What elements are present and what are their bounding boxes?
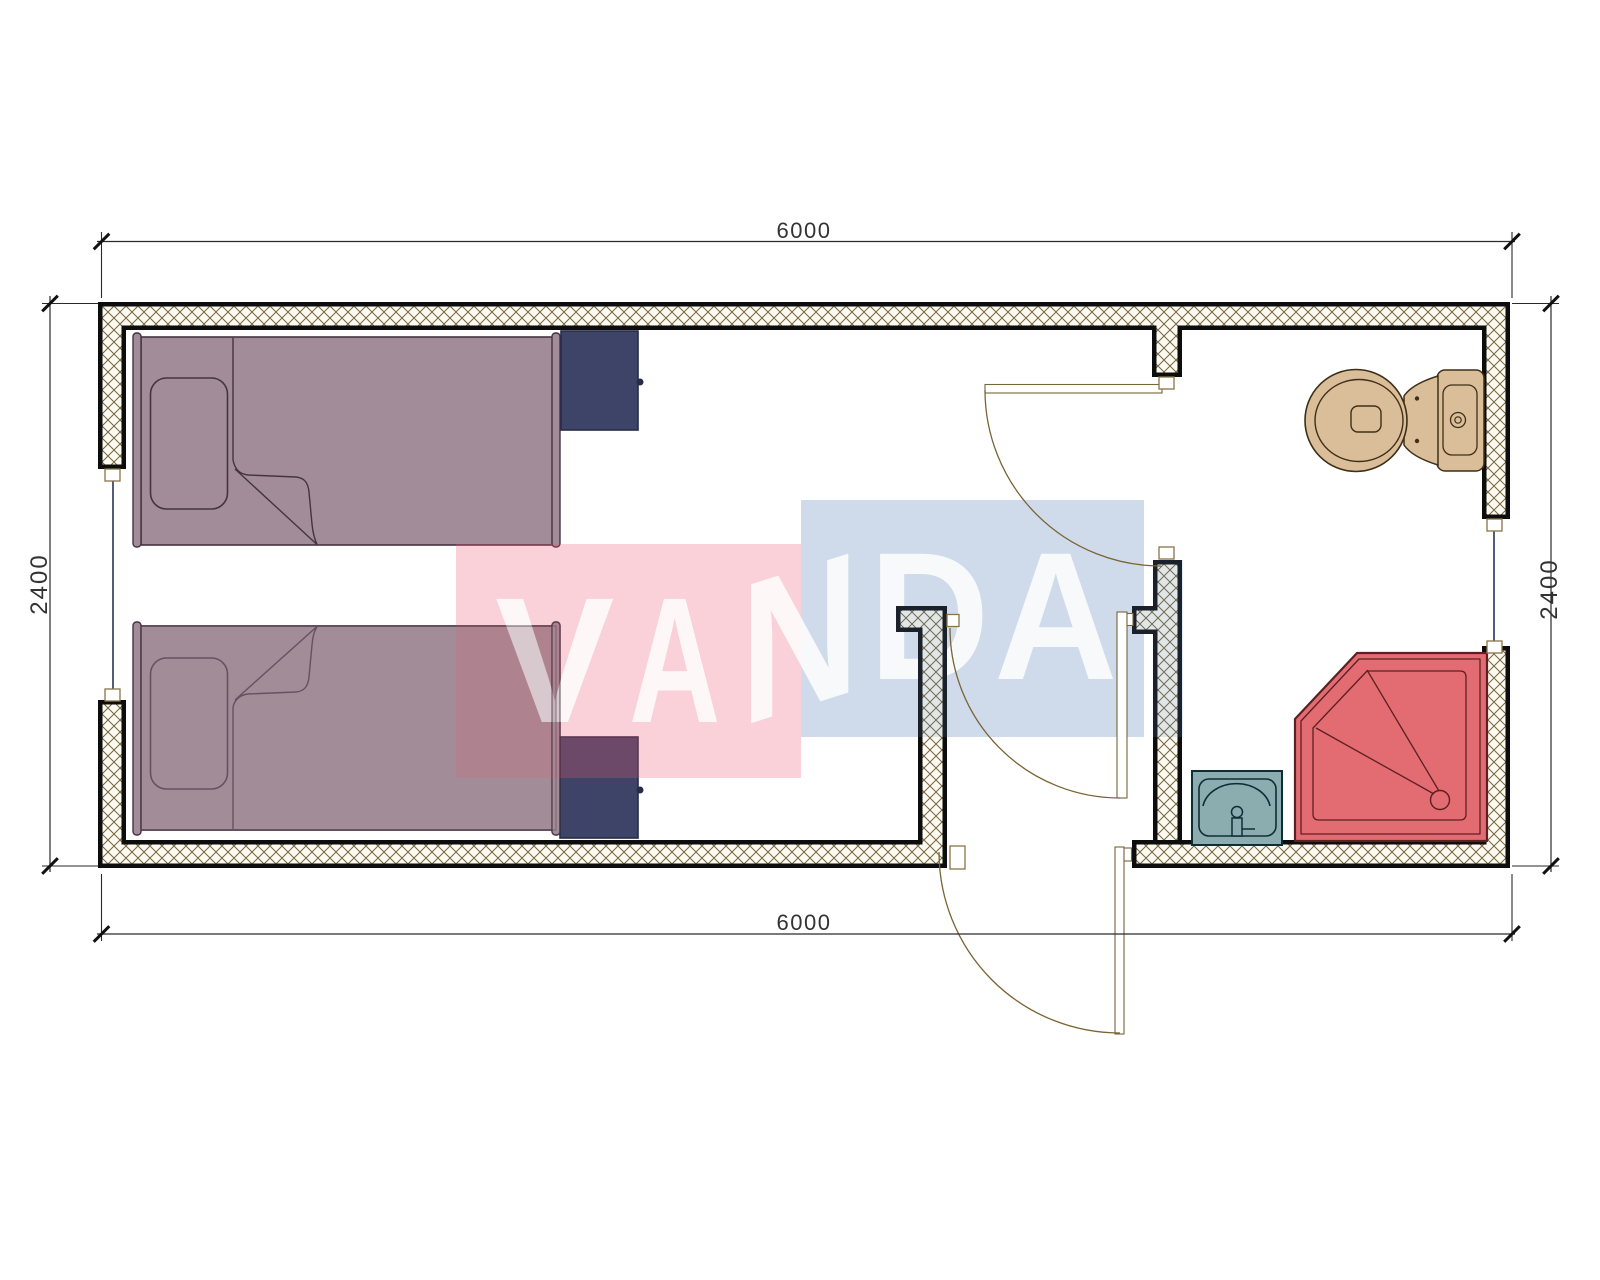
svg-text:6000: 6000 — [777, 218, 832, 243]
svg-text:N: N — [740, 507, 859, 770]
svg-text:A: A — [994, 515, 1118, 718]
svg-text:A: A — [629, 560, 720, 760]
svg-text:6000: 6000 — [777, 910, 832, 935]
svg-text:2400: 2400 — [26, 553, 53, 614]
svg-text:2400: 2400 — [1536, 558, 1563, 619]
